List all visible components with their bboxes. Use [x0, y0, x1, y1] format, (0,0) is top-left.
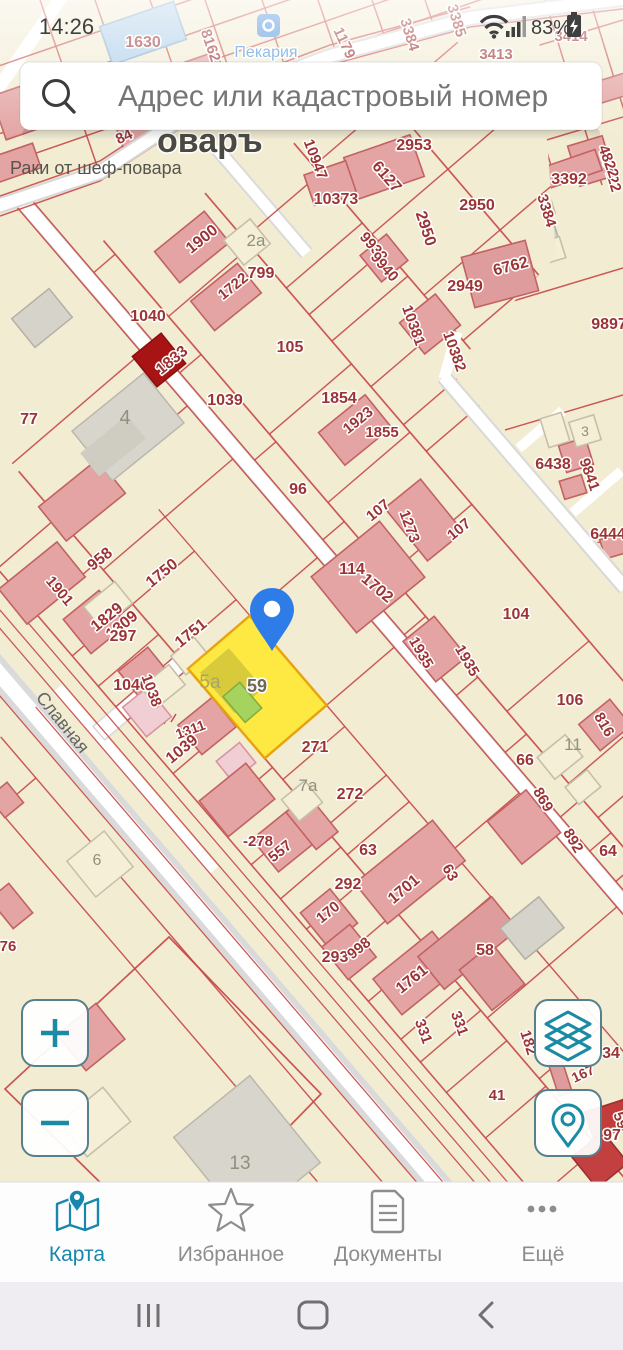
svg-text:76: 76: [0, 938, 16, 955]
svg-text:83%: 83%: [531, 17, 571, 39]
svg-text:2949: 2949: [447, 278, 483, 295]
svg-text:Адрес или кадастровый номер: Адрес или кадастровый номер: [118, 80, 548, 113]
svg-text:Избранное: Избранное: [178, 1243, 284, 1266]
svg-text:-278: -278: [243, 833, 273, 850]
svg-text:7а: 7а: [299, 776, 318, 795]
svg-text:105: 105: [277, 339, 304, 356]
svg-text:1855: 1855: [365, 424, 398, 441]
svg-text:11: 11: [564, 735, 582, 754]
svg-text:77: 77: [20, 411, 38, 428]
svg-text:9897: 9897: [591, 316, 623, 333]
svg-text:Карта: Карта: [49, 1243, 106, 1266]
svg-text:271: 271: [302, 739, 329, 756]
svg-text:58: 58: [476, 942, 494, 959]
svg-text:104: 104: [503, 606, 530, 623]
svg-text:Ещё: Ещё: [522, 1243, 565, 1266]
svg-text:64: 64: [599, 843, 617, 860]
svg-text:106: 106: [557, 692, 584, 709]
svg-text:96: 96: [289, 481, 307, 498]
svg-text:272: 272: [337, 786, 364, 803]
svg-text:1854: 1854: [321, 390, 357, 407]
svg-text:2950: 2950: [459, 197, 495, 214]
svg-text:66: 66: [516, 752, 534, 769]
svg-text:Раки от шеф-повара: Раки от шеф-повара: [10, 158, 183, 178]
svg-text:5а: 5а: [199, 672, 221, 693]
svg-text:3392: 3392: [551, 171, 587, 188]
svg-text:6438: 6438: [535, 456, 571, 473]
svg-text:63: 63: [359, 842, 377, 859]
svg-text:6: 6: [93, 852, 102, 869]
svg-text:3: 3: [581, 423, 589, 439]
svg-text:34: 34: [602, 1045, 620, 1062]
svg-text:Документы: Документы: [334, 1243, 442, 1266]
svg-text:41: 41: [489, 1087, 506, 1104]
svg-text:97: 97: [603, 1127, 621, 1144]
svg-text:114: 114: [339, 561, 365, 578]
svg-text:1039: 1039: [207, 392, 243, 409]
svg-text:799: 799: [248, 265, 275, 282]
svg-text:6444: 6444: [590, 526, 623, 543]
svg-text:10373: 10373: [314, 191, 359, 208]
svg-text:4: 4: [119, 407, 130, 429]
svg-text:14:26: 14:26: [39, 14, 94, 39]
svg-text:297: 297: [110, 628, 137, 645]
svg-text:2а: 2а: [247, 231, 266, 250]
svg-text:13: 13: [229, 1153, 250, 1174]
svg-text:1040: 1040: [130, 308, 166, 325]
svg-text:59: 59: [247, 676, 267, 696]
svg-text:292: 292: [335, 876, 362, 893]
